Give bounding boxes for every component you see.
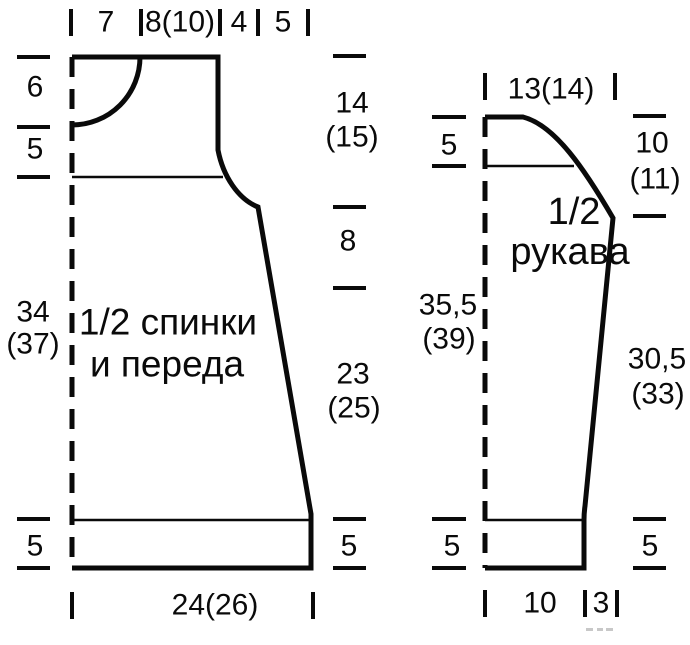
body-piece: 7 8(10) 4 5 6 5 34 (37) 5 14 (15) 8 23	[6, 6, 380, 622]
sleeve-seam-length-alt-label: (33)	[631, 378, 684, 411]
body-piece-title-line1: 1/2 спинки	[79, 302, 257, 343]
sleeve-seam-length-label: 30,5	[628, 343, 686, 376]
body-side-width-label: 5	[275, 6, 292, 39]
body-shoulder-width-label: 8(10)	[145, 6, 215, 39]
sleeve-top-width-label: 13(14)	[508, 73, 595, 106]
body-length-label: 34	[16, 296, 49, 329]
body-neckline-curve	[72, 57, 140, 125]
pattern-schematic: 7 8(10) 4 5 6 5 34 (37) 5 14 (15) 8 23	[0, 0, 690, 645]
body-armhole-width-label: 4	[231, 6, 248, 39]
body-neck-width-label: 7	[98, 6, 115, 39]
body-rib-height-right-label: 5	[341, 530, 358, 563]
sleeve-rib-height-left-label: 5	[444, 530, 461, 563]
sleeve-length-label: 35,5	[419, 289, 477, 322]
body-hem-width-label: 24(26)	[172, 589, 259, 622]
sleeve-length-alt-label: (39)	[422, 323, 475, 356]
body-rib-height-left-label: 5	[27, 530, 44, 563]
sleeve-cuff-extra-width-label: 3	[593, 587, 610, 620]
body-neck-depth-label: 6	[27, 71, 44, 104]
sleeve-rib-height-right-label: 5	[642, 530, 659, 563]
body-piece-title-line2: и переда	[90, 344, 244, 385]
cropped-artifact-marks	[586, 628, 613, 631]
schematic-drawing: 7 8(10) 4 5 6 5 34 (37) 5 14 (15) 8 23	[0, 0, 690, 645]
sleeve-cap-height-label: 10	[635, 127, 668, 160]
sleeve-outline	[485, 117, 613, 568]
body-lower-side-alt-label: (25)	[327, 392, 380, 425]
body-yoke-height-label: 5	[27, 133, 44, 166]
body-upper-side-label: 8	[340, 225, 357, 258]
body-lower-side-label: 23	[336, 358, 369, 391]
body-armhole-depth-label: 14	[335, 87, 368, 120]
sleeve-cuff-width-label: 10	[523, 587, 556, 620]
sleeve-piece-title-line1: 1/2	[548, 191, 601, 233]
body-length-alt-label: (37)	[6, 328, 59, 361]
sleeve-cap-height-alt-label: (11)	[629, 163, 680, 196]
sleeve-piece: 13(14) 5 35,5 (39) 5 10 (11) 30,5 (33) 5	[419, 73, 686, 620]
body-armhole-depth-alt-label: (15)	[325, 121, 378, 154]
sleeve-cap-top-height-label: 5	[441, 129, 458, 162]
sleeve-piece-title-line2: рукава	[510, 231, 630, 273]
